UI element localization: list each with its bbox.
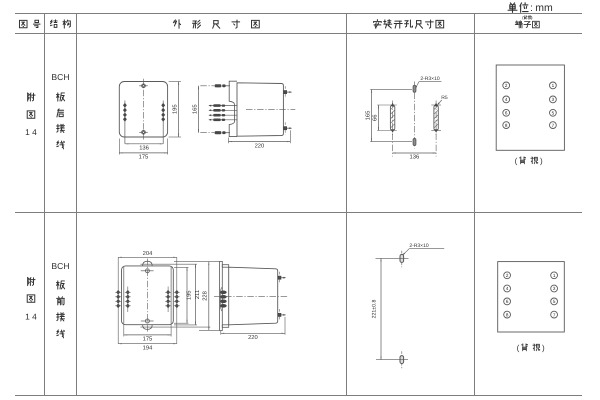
svg-text:220: 220 [255,142,265,149]
svg-text:mm: mm [535,2,553,14]
svg-text:165: 165 [191,104,198,114]
svg-text:204: 204 [143,250,153,257]
svg-text:8: 8 [505,123,508,128]
svg-text:2-R3×10: 2-R3×10 [420,76,440,82]
svg-text:1: 1 [552,83,555,88]
svg-text:5: 5 [552,110,555,115]
svg-text:3: 3 [552,97,555,102]
svg-text::: : [530,2,533,14]
svg-text:8: 8 [506,312,509,317]
svg-text:175: 175 [139,155,149,161]
svg-text:1: 1 [553,273,556,278]
svg-text:4: 4 [506,286,509,291]
svg-text:(: ( [517,344,520,353]
svg-text:211: 211 [194,290,201,299]
svg-text:221±0.8: 221±0.8 [371,300,377,319]
svg-text:): ) [540,157,543,166]
svg-text:3: 3 [553,286,556,291]
svg-text:194: 194 [143,344,153,351]
svg-text:6: 6 [505,110,508,115]
svg-text:7: 7 [552,123,555,128]
svg-text:6: 6 [506,299,509,304]
svg-text:): ) [542,344,545,353]
svg-text:BCH: BCH [51,261,69,271]
svg-text:R5: R5 [441,95,448,101]
svg-text:195: 195 [185,290,192,300]
svg-text:(: ( [515,157,518,166]
svg-text:228: 228 [201,291,208,301]
svg-text:1 4: 1 4 [25,312,37,322]
svg-text:2: 2 [506,273,509,278]
svg-text:7: 7 [553,312,556,317]
svg-text:BCH: BCH [51,72,69,82]
svg-text:136: 136 [139,145,149,152]
svg-text:2: 2 [505,83,508,88]
svg-text:2-R3×10: 2-R3×10 [409,243,429,249]
svg-text:165: 165 [364,111,371,121]
svg-text:220: 220 [248,334,258,341]
svg-text:136: 136 [410,154,420,161]
svg-text:5: 5 [553,299,556,304]
svg-text:66: 66 [371,115,378,121]
svg-text:4: 4 [505,97,508,102]
svg-text:1 4: 1 4 [25,127,37,137]
svg-text:195: 195 [171,104,178,114]
svg-text:175: 175 [143,337,153,343]
